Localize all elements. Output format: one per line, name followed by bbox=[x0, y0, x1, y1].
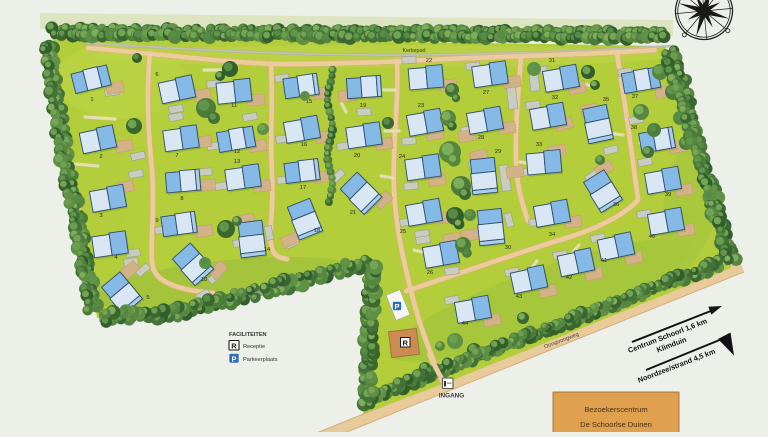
svg-text:10: 10 bbox=[201, 277, 207, 283]
svg-text:16: 16 bbox=[301, 142, 307, 148]
svg-text:32: 32 bbox=[552, 95, 558, 101]
svg-text:27: 27 bbox=[483, 90, 489, 96]
svg-text:R: R bbox=[231, 342, 237, 351]
svg-text:34: 34 bbox=[549, 232, 556, 238]
svg-text:43: 43 bbox=[516, 294, 522, 300]
svg-text:P: P bbox=[231, 355, 236, 364]
svg-text:21: 21 bbox=[350, 210, 356, 216]
svg-text:14: 14 bbox=[264, 247, 271, 253]
svg-text:Parkeerplaats: Parkeerplaats bbox=[243, 357, 278, 363]
svg-text:37: 37 bbox=[632, 94, 638, 100]
svg-text:P: P bbox=[394, 302, 399, 311]
svg-text:44: 44 bbox=[462, 321, 469, 327]
svg-text:12: 12 bbox=[234, 149, 240, 155]
svg-text:26: 26 bbox=[427, 270, 433, 276]
svg-text:31: 31 bbox=[549, 58, 555, 64]
svg-text:8: 8 bbox=[180, 196, 183, 202]
svg-text:35: 35 bbox=[603, 97, 609, 103]
svg-text:17: 17 bbox=[300, 185, 306, 191]
svg-text:24: 24 bbox=[399, 154, 406, 160]
svg-text:38: 38 bbox=[631, 125, 637, 131]
svg-text:42: 42 bbox=[566, 275, 572, 281]
svg-text:9: 9 bbox=[155, 218, 158, 224]
svg-text:Bezoekerscentrum: Bezoekerscentrum bbox=[584, 405, 647, 414]
svg-text:23: 23 bbox=[418, 103, 424, 109]
svg-text:INGANG: INGANG bbox=[439, 393, 465, 400]
svg-text:7: 7 bbox=[175, 153, 178, 159]
svg-text:39: 39 bbox=[665, 192, 671, 198]
svg-text:40: 40 bbox=[649, 234, 655, 240]
svg-text:20: 20 bbox=[354, 153, 360, 159]
svg-text:De Schoorlse Duinen: De Schoorlse Duinen bbox=[580, 420, 652, 429]
svg-text:36: 36 bbox=[613, 202, 619, 208]
svg-text:33: 33 bbox=[536, 142, 542, 148]
svg-text:13: 13 bbox=[234, 159, 240, 165]
svg-text:Receptie: Receptie bbox=[243, 344, 265, 350]
svg-text:FACILITEITEN: FACILITEITEN bbox=[229, 332, 267, 338]
svg-text:5: 5 bbox=[146, 295, 149, 301]
svg-text:Kerkepad: Kerkepad bbox=[402, 48, 425, 54]
svg-text:6: 6 bbox=[155, 72, 158, 78]
svg-text:22: 22 bbox=[426, 58, 432, 64]
svg-text:29: 29 bbox=[495, 149, 501, 155]
svg-text:41: 41 bbox=[601, 258, 607, 264]
svg-text:25: 25 bbox=[400, 229, 406, 235]
svg-text:30: 30 bbox=[505, 245, 511, 251]
svg-text:R: R bbox=[402, 339, 408, 348]
svg-text:2: 2 bbox=[99, 154, 102, 160]
svg-text:28: 28 bbox=[478, 135, 484, 141]
svg-text:1: 1 bbox=[90, 97, 93, 103]
svg-text:19: 19 bbox=[360, 103, 366, 109]
svg-text:3: 3 bbox=[99, 213, 102, 219]
svg-text:18: 18 bbox=[314, 228, 320, 234]
svg-text:11: 11 bbox=[231, 103, 237, 109]
